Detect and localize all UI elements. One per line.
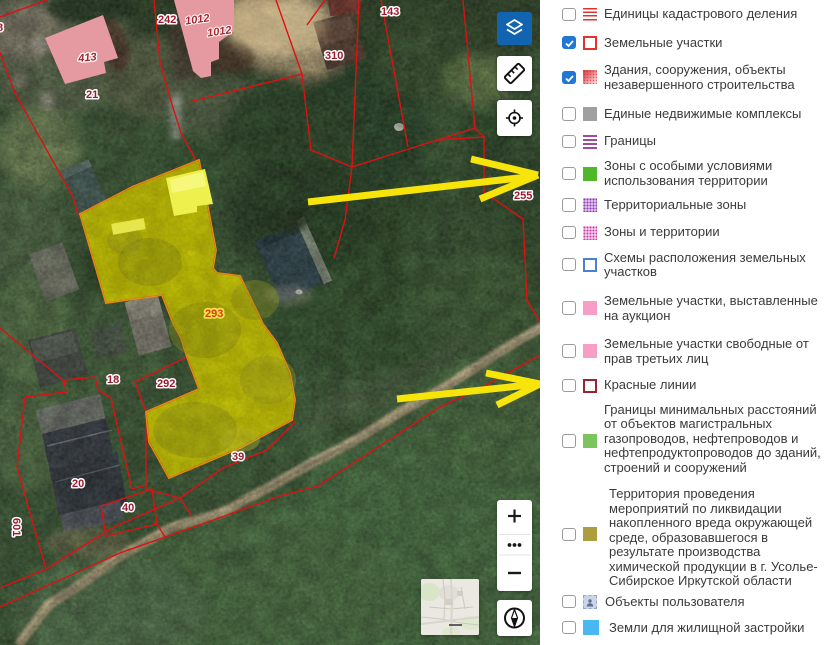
svg-text:310: 310	[325, 50, 343, 62]
svg-text:40: 40	[122, 502, 134, 514]
svg-text:18: 18	[107, 374, 119, 386]
svg-text:143: 143	[381, 6, 399, 18]
svg-text:413: 413	[77, 51, 98, 65]
svg-text:39: 39	[232, 451, 244, 463]
svg-text:20: 20	[72, 478, 84, 490]
svg-text:601: 601	[10, 518, 22, 536]
svg-text:21: 21	[86, 89, 98, 101]
svg-text:242: 242	[158, 14, 176, 26]
svg-text:255: 255	[514, 190, 532, 202]
svg-text:8: 8	[0, 22, 3, 34]
svg-text:293: 293	[205, 308, 223, 320]
svg-text:292: 292	[157, 378, 175, 390]
